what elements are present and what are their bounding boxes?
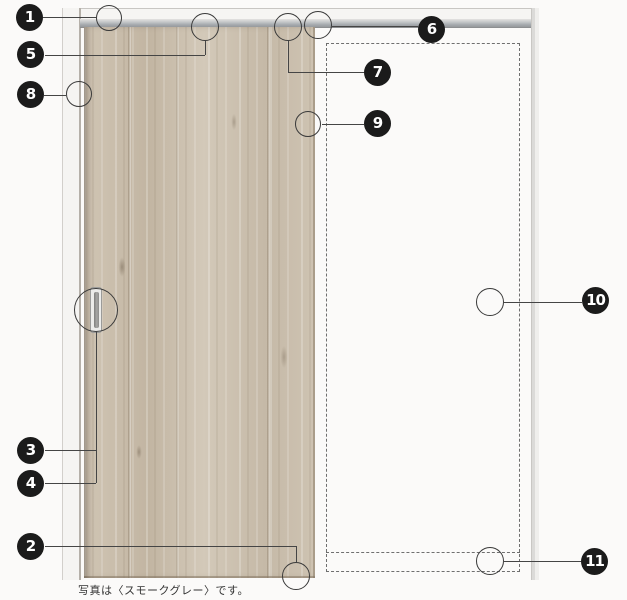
leader-line-11 <box>504 561 581 562</box>
marker-circle-top-casing <box>96 5 122 31</box>
marker-circle-opening-bottom <box>476 547 504 575</box>
callout-badge-11: 11 <box>581 548 608 575</box>
leader-line-2-v <box>296 546 297 562</box>
callout-badge-7: 7 <box>364 59 391 86</box>
callout-badge-1: 1 <box>16 4 43 31</box>
door-panel <box>84 27 315 578</box>
callout-badge-5: 5 <box>17 41 44 68</box>
marker-circle-door-bottom <box>282 562 310 590</box>
leader-line-2-h <box>45 546 296 547</box>
callout-badge-6: 6 <box>418 16 445 43</box>
marker-circle-handle <box>74 288 118 332</box>
leader-line-9 <box>322 124 364 125</box>
leader-line-10 <box>504 302 582 303</box>
leader-line-5-h <box>45 55 205 56</box>
leader-line-6 <box>332 26 418 27</box>
leader-line-3 <box>45 450 96 451</box>
leader-line-7-v <box>288 41 289 72</box>
callout-badge-2: 2 <box>17 533 44 560</box>
leader-line-5-v <box>205 41 206 55</box>
marker-circle-left-casing <box>66 81 92 107</box>
marker-circle-rail-door-edge <box>274 13 302 41</box>
right-casing <box>531 8 546 580</box>
leader-line-1 <box>43 17 96 18</box>
marker-circle-opening-right <box>476 288 504 316</box>
callout-badge-10: 10 <box>582 287 609 314</box>
callout-badge-4: 4 <box>17 470 44 497</box>
marker-circle-rail-left <box>191 13 219 41</box>
leader-line-8 <box>44 95 66 96</box>
photo-color-caption: 写真は〈スモークグレー〉です。 <box>78 582 249 598</box>
sliding-door-diagram: 1 5 8 3 4 2 6 7 9 10 11 写真は〈スモークグレー〉です。 <box>0 0 627 600</box>
callout-badge-9: 9 <box>364 110 391 137</box>
leader-line-handle-v <box>96 332 97 483</box>
leader-line-4 <box>45 483 96 484</box>
marker-circle-door-right-edge <box>295 111 321 137</box>
leader-line-7-h <box>288 72 364 73</box>
marker-circle-rail-right <box>304 11 332 39</box>
callout-badge-8: 8 <box>17 81 44 108</box>
callout-badge-3: 3 <box>17 437 44 464</box>
